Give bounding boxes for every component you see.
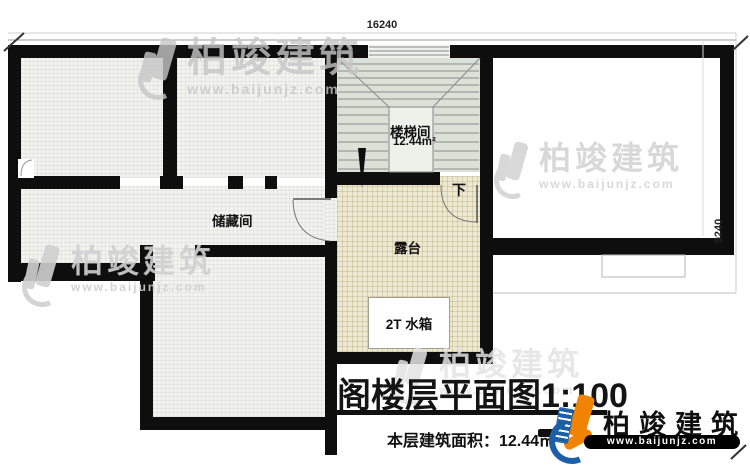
wall: [228, 176, 243, 189]
dimension-top: 16240: [336, 19, 428, 31]
watermark-building-icon: [24, 245, 64, 303]
stairwell-area-label: 12.44m²: [393, 136, 436, 148]
watermark-top: 柏竣建筑 www.baijunjz.com: [140, 38, 363, 97]
stair-direction-label: 下: [452, 180, 466, 200]
water-tank: 2T 水箱: [368, 297, 450, 349]
door-opening-floor: [325, 198, 337, 241]
stairwell-top-opening-floor: [368, 45, 450, 58]
watermark-right: 柏竣建筑 www.baijunjz.com: [496, 142, 683, 196]
watermark-building-icon: [496, 142, 532, 196]
wall: [140, 417, 337, 430]
watermark-name: 柏竣建筑: [539, 142, 683, 175]
roof-outline-rect: [602, 255, 685, 277]
wall: [160, 176, 183, 189]
watermark-url: www.baijunjz.com: [539, 177, 683, 191]
watermark-url: www.baijunjz.com: [71, 280, 215, 294]
water-tank-label: 2T 水箱: [386, 313, 433, 333]
wall: [325, 172, 337, 198]
wall: [480, 238, 734, 255]
floor-plan: 柏竣建筑 www.baijunjz.com 柏竣建筑 www.baijunjz.…: [0, 0, 750, 468]
wall: [325, 172, 440, 185]
brand-url-badge: www.baijunjz.com: [584, 435, 740, 449]
floor-area-text: 本层建筑面积：12.44㎡: [387, 427, 555, 451]
watermark-left: 柏竣建筑 www.baijunjz.com: [24, 245, 215, 303]
dimension-right: 9240: [713, 211, 727, 251]
terrace-label: 露台: [394, 237, 421, 257]
wall: [21, 176, 120, 189]
wall: [480, 45, 493, 364]
watermark-name: 柏竣建筑: [71, 245, 215, 278]
watermark-building-icon: [140, 38, 180, 96]
wall: [265, 176, 277, 189]
watermark-name: 柏竣建筑: [187, 38, 363, 79]
wall: [195, 245, 337, 257]
storage-room-label: 储藏间: [212, 210, 253, 230]
watermark-url: www.baijunjz.com: [187, 81, 363, 97]
left-wall-notch: [18, 159, 34, 178]
